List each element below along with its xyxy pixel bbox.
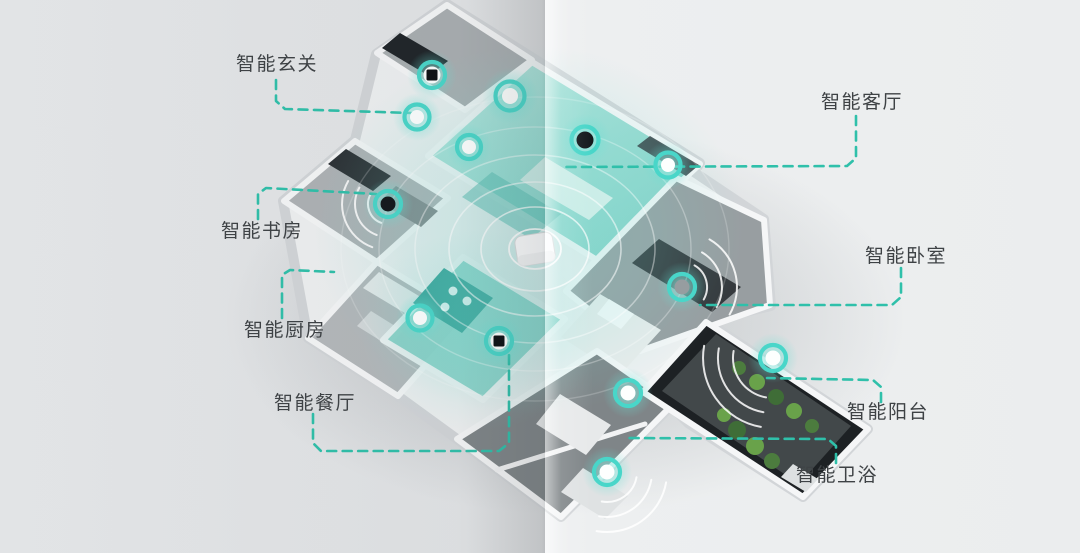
room-label-balcony: 智能阳台 bbox=[847, 401, 929, 423]
bedroom-sensor-icon bbox=[657, 262, 707, 312]
room-label-bathroom: 智能卫浴 bbox=[796, 464, 878, 486]
entry-door-lock-sensor-icon bbox=[407, 50, 457, 100]
gateway-hub-icon bbox=[514, 231, 556, 267]
balcony-sensor-icon bbox=[748, 333, 798, 383]
hallway-motion-sensor-icon bbox=[446, 124, 492, 170]
bathroom-bath-sensor-icon bbox=[582, 447, 632, 497]
living-smart-speaker-icon bbox=[559, 114, 611, 166]
room-label-study: 智能书房 bbox=[221, 220, 303, 242]
room-label-kitchen: 智能厨房 bbox=[244, 319, 326, 341]
room-label-bedroom: 智能卧室 bbox=[865, 245, 947, 267]
living-wall-ac-sensor-icon bbox=[644, 141, 692, 189]
bathroom-washer-sensor-icon bbox=[603, 368, 653, 418]
room-label-entry: 智能玄关 bbox=[236, 53, 318, 75]
dining-smart-panel-icon bbox=[474, 316, 524, 366]
room-label-dining: 智能餐厅 bbox=[274, 392, 356, 414]
smart-home-infographic: 智能玄关 智能客厅 智能书房 智能厨房 智能餐厅 智能卧室 智能阳台 智能卫浴 bbox=[0, 0, 1080, 553]
room-label-living: 智能客厅 bbox=[821, 91, 903, 113]
kitchen-sensor-icon bbox=[396, 294, 444, 342]
hallway-ceiling-sensor-icon bbox=[482, 68, 538, 124]
entry-wall-switch-sensor-icon bbox=[393, 93, 441, 141]
smart-home-illustration bbox=[0, 0, 1080, 553]
study-sensor-icon bbox=[363, 179, 413, 229]
